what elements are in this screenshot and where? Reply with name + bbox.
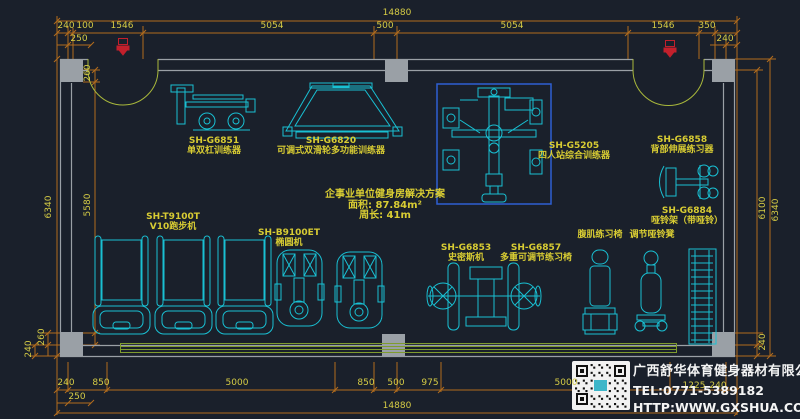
equipment-model: SH-G5205 — [538, 141, 610, 151]
company-name: 广西舒华体育健身器材有限公司 — [633, 360, 800, 379]
dimension-label: 240 — [24, 340, 34, 357]
dimension-label: 1546 — [111, 21, 134, 31]
equipment-model: SH-G6858 — [650, 135, 713, 145]
equipment-smith-machine — [427, 263, 541, 330]
equipment-label: SH-G6820可调式双滑轮多功能训练器 — [277, 136, 385, 156]
dimension-label: 5580 — [83, 194, 93, 217]
equipment-elliptical-2 — [335, 252, 384, 328]
dimension-label: 260 — [37, 328, 47, 345]
dimension-label: 850 — [357, 378, 374, 388]
dimension-label: 100 — [76, 21, 93, 31]
dimension-label: 250 — [68, 392, 85, 402]
equipment-model: SH-G6884 — [651, 206, 723, 216]
title-block: 广西舒华体育健身器材有限公司 TEL:0771-5389182 HTTP:WWW… — [633, 360, 800, 415]
dimension-label: 6340 — [44, 196, 54, 219]
equipment-dumbbell-stool — [635, 251, 667, 331]
equipment-model: SH-G6851 — [187, 136, 241, 146]
dimension-label: 250 — [70, 34, 87, 44]
dimension-label: 1546 — [652, 21, 675, 31]
equipment-name: 椭圆机 — [258, 238, 320, 248]
equipment-model: SH-G6853 — [441, 243, 491, 253]
equipment-label: SH-B9100ET椭圆机 — [258, 228, 320, 248]
equipment-label: SH-G6857多重可调节练习椅 — [500, 243, 572, 263]
cad-drawing-canvas[interactable]: 1488024010015465054500505415463502502402… — [0, 0, 800, 419]
dimension-label: 6100 — [758, 197, 768, 220]
qr-code — [572, 361, 630, 410]
equipment-name: 单双杠训练器 — [187, 146, 241, 156]
qr-center-logo — [594, 380, 607, 391]
equipment-model: SH-B9100ET — [258, 228, 320, 238]
double-door-right — [633, 59, 704, 106]
equipment-treadmill-1 — [93, 236, 150, 334]
dimension-label: 240 — [57, 21, 74, 31]
equipment-cable-crossover — [283, 83, 402, 138]
equipment-name: 可调式双滑轮多功能训练器 — [277, 146, 385, 156]
company-website: HTTP:WWW.GXSHUA.COM — [633, 400, 800, 415]
equipment-name: 腹肌练习椅 — [577, 230, 622, 240]
equipment-elliptical-1 — [275, 250, 324, 326]
equipment-label: SH-G6853史密斯机 — [441, 243, 491, 263]
equipment-label: SH-G6851单双杠训练器 — [187, 136, 241, 156]
dimension-label: 5000 — [226, 378, 249, 388]
equipment-four-person-station — [443, 88, 542, 202]
equipment-label: SH-G6858背部伸展练习器 — [650, 135, 713, 155]
equipment-label: 调节哑铃凳 — [629, 230, 674, 240]
equipment-name: 史密斯机 — [441, 253, 491, 263]
equipment-dip-station — [171, 85, 255, 130]
dimension-label: 6340 — [771, 199, 781, 222]
equipment-dumbbell-rack — [689, 249, 716, 344]
dimension-label: 240 — [758, 333, 768, 350]
dimension-label: 240 — [716, 34, 733, 44]
equipment-model: SH-G6857 — [500, 243, 572, 253]
dimension-label: 5054 — [261, 21, 284, 31]
dimension-label: 14880 — [383, 8, 412, 18]
dimension-label: 5000 — [555, 378, 578, 388]
equipment-label: SH-G5205四人站综合训练器 — [538, 141, 610, 161]
equipment-model: SH-G6820 — [277, 136, 385, 146]
equipment-label: SH-T9100TV10跑步机 — [146, 212, 200, 232]
equipment-name: 多重可调节练习椅 — [500, 253, 572, 263]
equipment-back-extension — [660, 165, 719, 199]
dimension-label: 14880 — [383, 401, 412, 411]
equipment-name: 背部伸展练习器 — [650, 145, 713, 155]
equipment-model: SH-T9100T — [146, 212, 200, 222]
dimension-label: 500 — [376, 21, 393, 31]
equipment-name: 调节哑铃凳 — [629, 230, 674, 240]
dimension-label: 500 — [387, 378, 404, 388]
equipment-label: SH-G6884哑铃架（带哑铃） — [651, 206, 723, 226]
solution-title: 企事业单位健身房解决方案 — [325, 190, 445, 201]
equipment-name: V10跑步机 — [146, 222, 200, 232]
solution-perimeter: 周长: 41m — [325, 211, 445, 222]
equipment-treadmill-2 — [155, 236, 212, 334]
equipment-label: 腹肌练习椅 — [577, 230, 622, 240]
equipment-name: 哑铃架（带哑铃） — [651, 216, 723, 226]
solution-text: 企事业单位健身房解决方案 面积: 87.84m² 周长: 41m — [325, 190, 445, 222]
dimension-label: 240 — [57, 378, 74, 388]
dimension-label: 350 — [698, 21, 715, 31]
dimension-label: 850 — [92, 378, 109, 388]
dimension-label: 5054 — [501, 21, 524, 31]
dimension-label: 975 — [421, 378, 438, 388]
equipment-ab-bench — [583, 250, 617, 334]
dimension-label: 260 — [83, 64, 93, 81]
company-phone: TEL:0771-5389182 — [633, 383, 800, 398]
equipment-treadmill-3 — [216, 236, 273, 334]
equipment-name: 四人站综合训练器 — [538, 151, 610, 161]
